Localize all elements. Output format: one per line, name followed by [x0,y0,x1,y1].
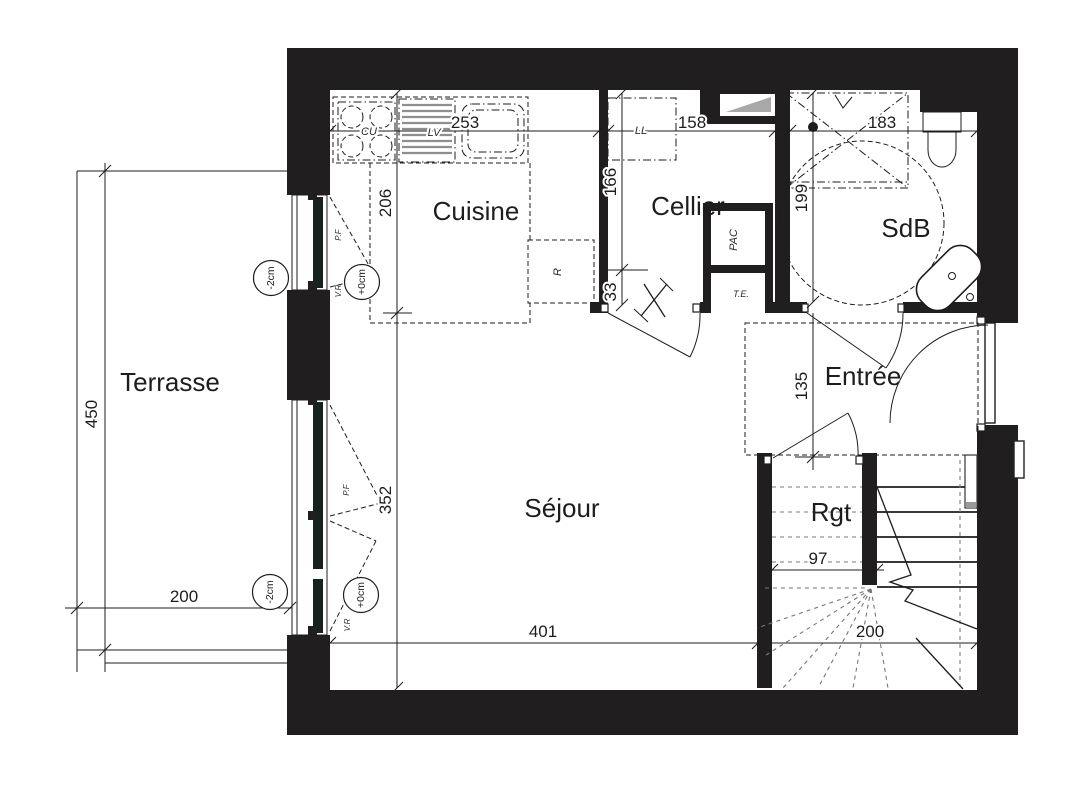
dim-storage-width: 97 [809,549,828,568]
shower-icon [786,93,908,188]
electrical-panel-label: T.E. [733,289,749,299]
level-floor-2: +0cm [344,578,379,613]
bath-pilaster [920,90,977,112]
exterior-box [1014,441,1024,478]
svg-text:+0cm: +0cm [355,582,367,608]
stair-break-line [877,487,977,629]
dim-stair-width: 200 [856,622,884,641]
dim-bath-depth: 199 [792,184,811,212]
shutter-label-1: V.R [334,284,343,297]
dim-cellar-width: 158 [678,113,706,132]
wall-left-upper [287,90,330,195]
floor-plan-drawing: 253 158 183 206 352 166 33 199 135 450 2… [0,0,1086,796]
dim-cellar-depth: 166 [601,168,620,196]
svg-text:-2cm: -2cm [264,580,276,604]
dim-kitchen-width: 253 [451,113,479,132]
room-label-terrace: Terrasse [120,367,220,397]
room-label-cellar: Cellier [651,191,725,221]
shutter-label-2: V.R [343,618,352,631]
dim-kitchen-depth: 206 [376,189,395,217]
wall-top [287,48,1018,90]
dim-living-width: 401 [529,622,557,641]
room-label-hall: Entrée [825,361,902,391]
fridge-label: R [552,268,564,276]
wall-right-upper [977,90,1018,323]
hob-label: CU [361,126,377,138]
level-terrace-2: -2cm [253,575,288,610]
svg-text:+0cm: +0cm [356,269,368,295]
level-terrace-1: -2cm [254,261,289,296]
svg-text:-2cm: -2cm [265,266,277,290]
dim-hall-depth: 135 [792,372,811,400]
storage-door [773,413,858,458]
french-door-label-1: P.F [334,228,343,241]
toilet-icon [923,112,961,167]
french-door-label-2: P.F [342,483,351,496]
room-label-kitchen: Cuisine [433,196,520,226]
dim-living-window: 352 [376,486,395,514]
floor-plan: 253 158 183 206 352 166 33 199 135 450 2… [0,0,1086,796]
pac-wall-bottom [703,265,773,273]
storage-wall-right [862,453,877,585]
wall-seg-2 [700,302,711,313]
wall-left-lower [287,635,330,690]
kitchen-zone [370,163,530,323]
duct-vent-icon [726,97,771,112]
level-floor-1: +0cm [345,265,380,300]
dim-terrace-height: 450 [82,400,101,428]
room-label-bath: SdB [881,213,930,243]
handrail [965,455,977,508]
heat-pump-label: PAC [728,229,740,251]
dim-terrace-width: 200 [170,587,198,606]
wall-seg-3 [765,302,807,313]
room-label-living: Séjour [524,493,599,523]
pac-wall-right [765,203,773,302]
wall-left-middle [287,290,330,400]
washer-label: LL [635,125,647,137]
dim-cellar-offset: 33 [601,283,620,302]
room-labels: Terrasse Cuisine Cellier SdB Entrée Séjo… [120,191,930,527]
dishwasher-label: LV [428,127,443,139]
room-label-storage: Rgt [811,497,852,527]
dim-bath-width: 183 [868,113,896,132]
entrance-door [890,323,995,423]
wall-bottom [287,690,1018,735]
wall-right-lower [977,425,1018,690]
bath-door [807,313,903,368]
